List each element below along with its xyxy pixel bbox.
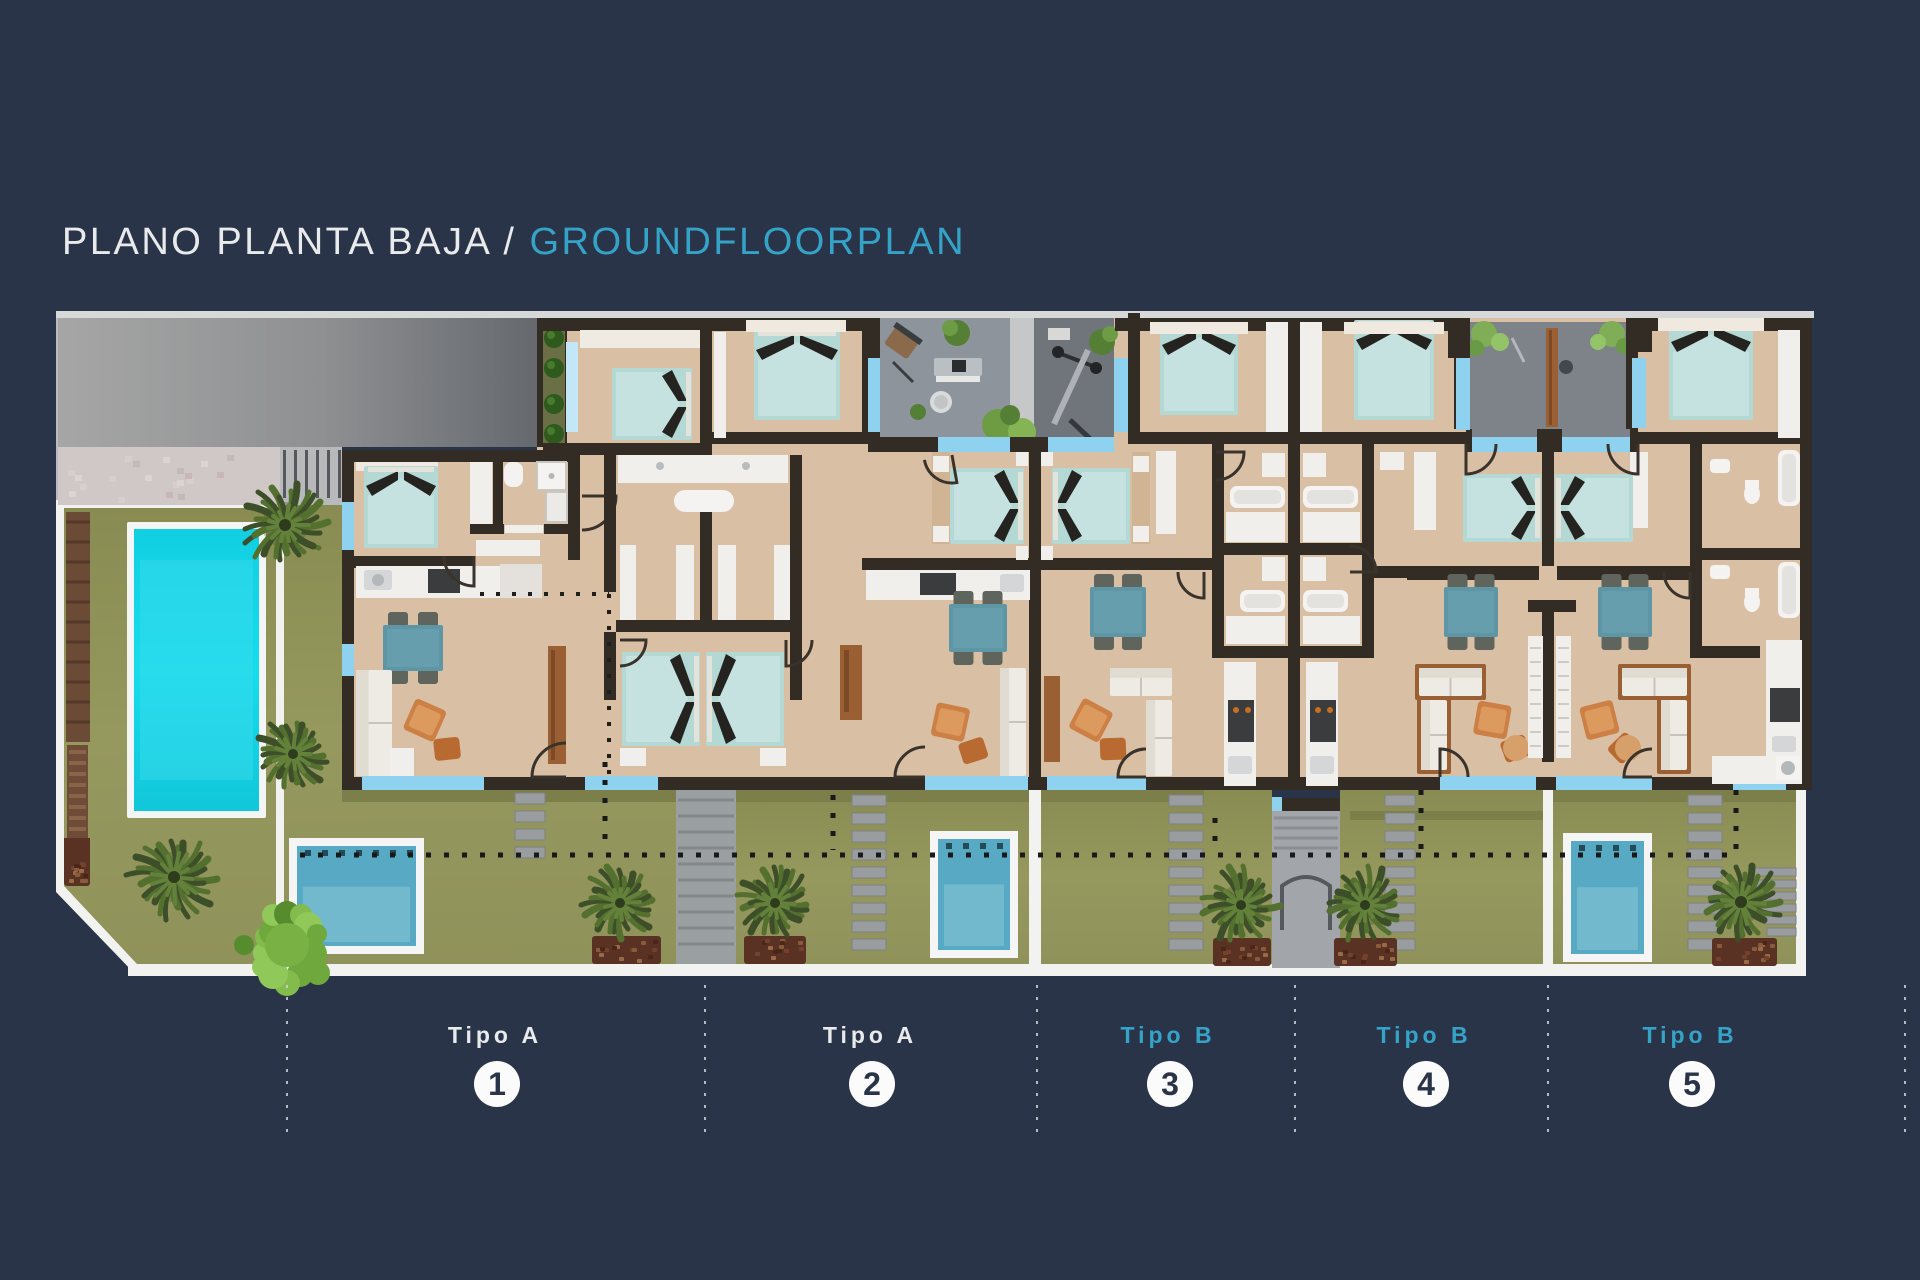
svg-text:Tipo B: Tipo B [1376,1022,1471,1048]
svg-text:Tipo A: Tipo A [448,1022,542,1048]
svg-text:1: 1 [488,1066,506,1102]
svg-text:Tipo B: Tipo B [1120,1022,1215,1048]
svg-text:4: 4 [1417,1066,1435,1102]
svg-text:Tipo B: Tipo B [1642,1022,1737,1048]
svg-text:5: 5 [1683,1066,1701,1102]
svg-text:PLANO PLANTA BAJA / GROUNDFLO: PLANO PLANTA BAJA / GROUNDFLOORPLAN [62,221,966,263]
svg-text:2: 2 [863,1066,881,1102]
svg-text:3: 3 [1161,1066,1179,1102]
svg-text:Tipo A: Tipo A [823,1022,917,1048]
